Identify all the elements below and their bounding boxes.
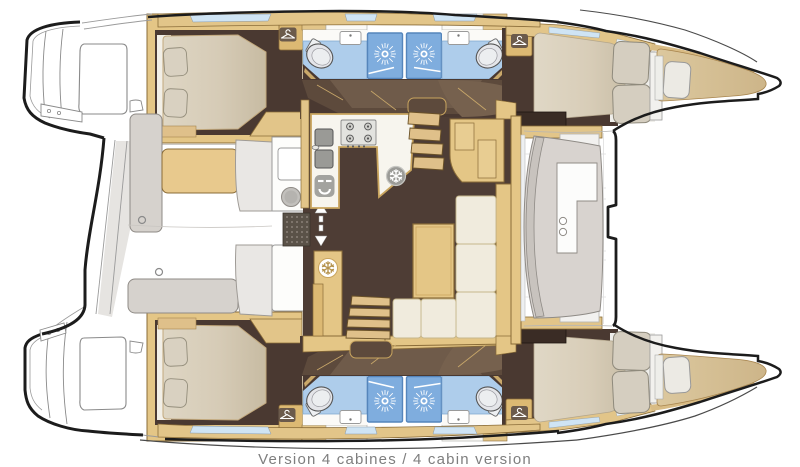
svg-text:Version 4 cabines / 4 cabin ve: Version 4 cabines / 4 cabin version <box>258 451 532 467</box>
